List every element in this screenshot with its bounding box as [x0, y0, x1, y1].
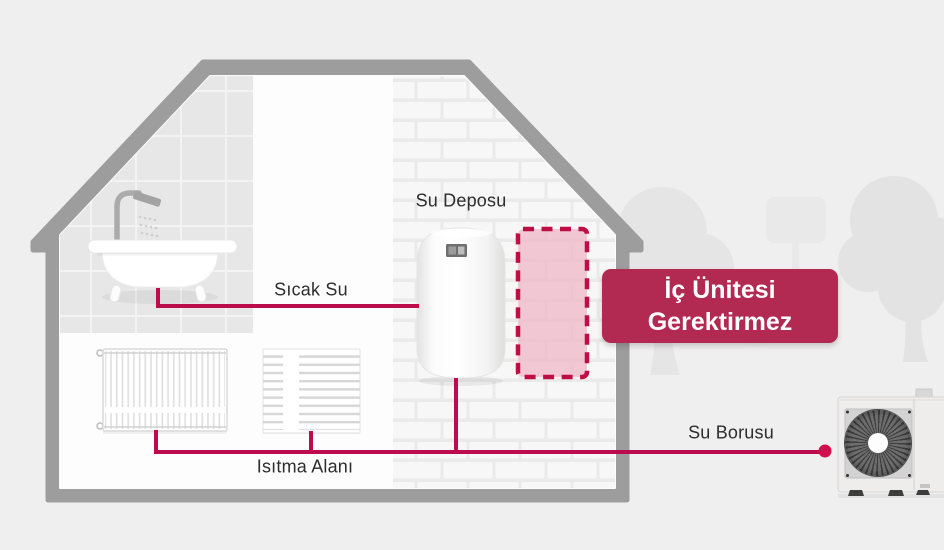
badge-line-1: İç Ünitesi: [664, 274, 775, 307]
pipe-endpoint-dot: [819, 445, 832, 458]
water-pipe-label: Su Borusu: [688, 423, 774, 444]
tank-display: [446, 244, 467, 257]
diagram-canvas: Su Deposu Sıcak Su Isıtma Alanı Su Borus…: [0, 0, 944, 550]
radiator-illustration: [97, 349, 227, 434]
fan-icon: [845, 410, 911, 476]
no-indoor-unit-badge: İç Ünitesi Gerektirmez: [602, 269, 838, 343]
heating-area-label: Isıtma Alanı: [257, 457, 353, 478]
hot-water-label: Sıcak Su: [274, 280, 348, 301]
bathtub-rim: [88, 240, 237, 253]
water-tank-label: Su Deposu: [416, 191, 507, 212]
tree-silhouette-right: [838, 176, 944, 362]
bathtub-body: [102, 253, 218, 287]
indoor-unit-placeholder: [518, 229, 587, 377]
heating-coil-illustration: [263, 349, 360, 434]
water-tank-illustration: [417, 228, 505, 386]
badge-line-2: Gerektirmez: [648, 306, 793, 339]
